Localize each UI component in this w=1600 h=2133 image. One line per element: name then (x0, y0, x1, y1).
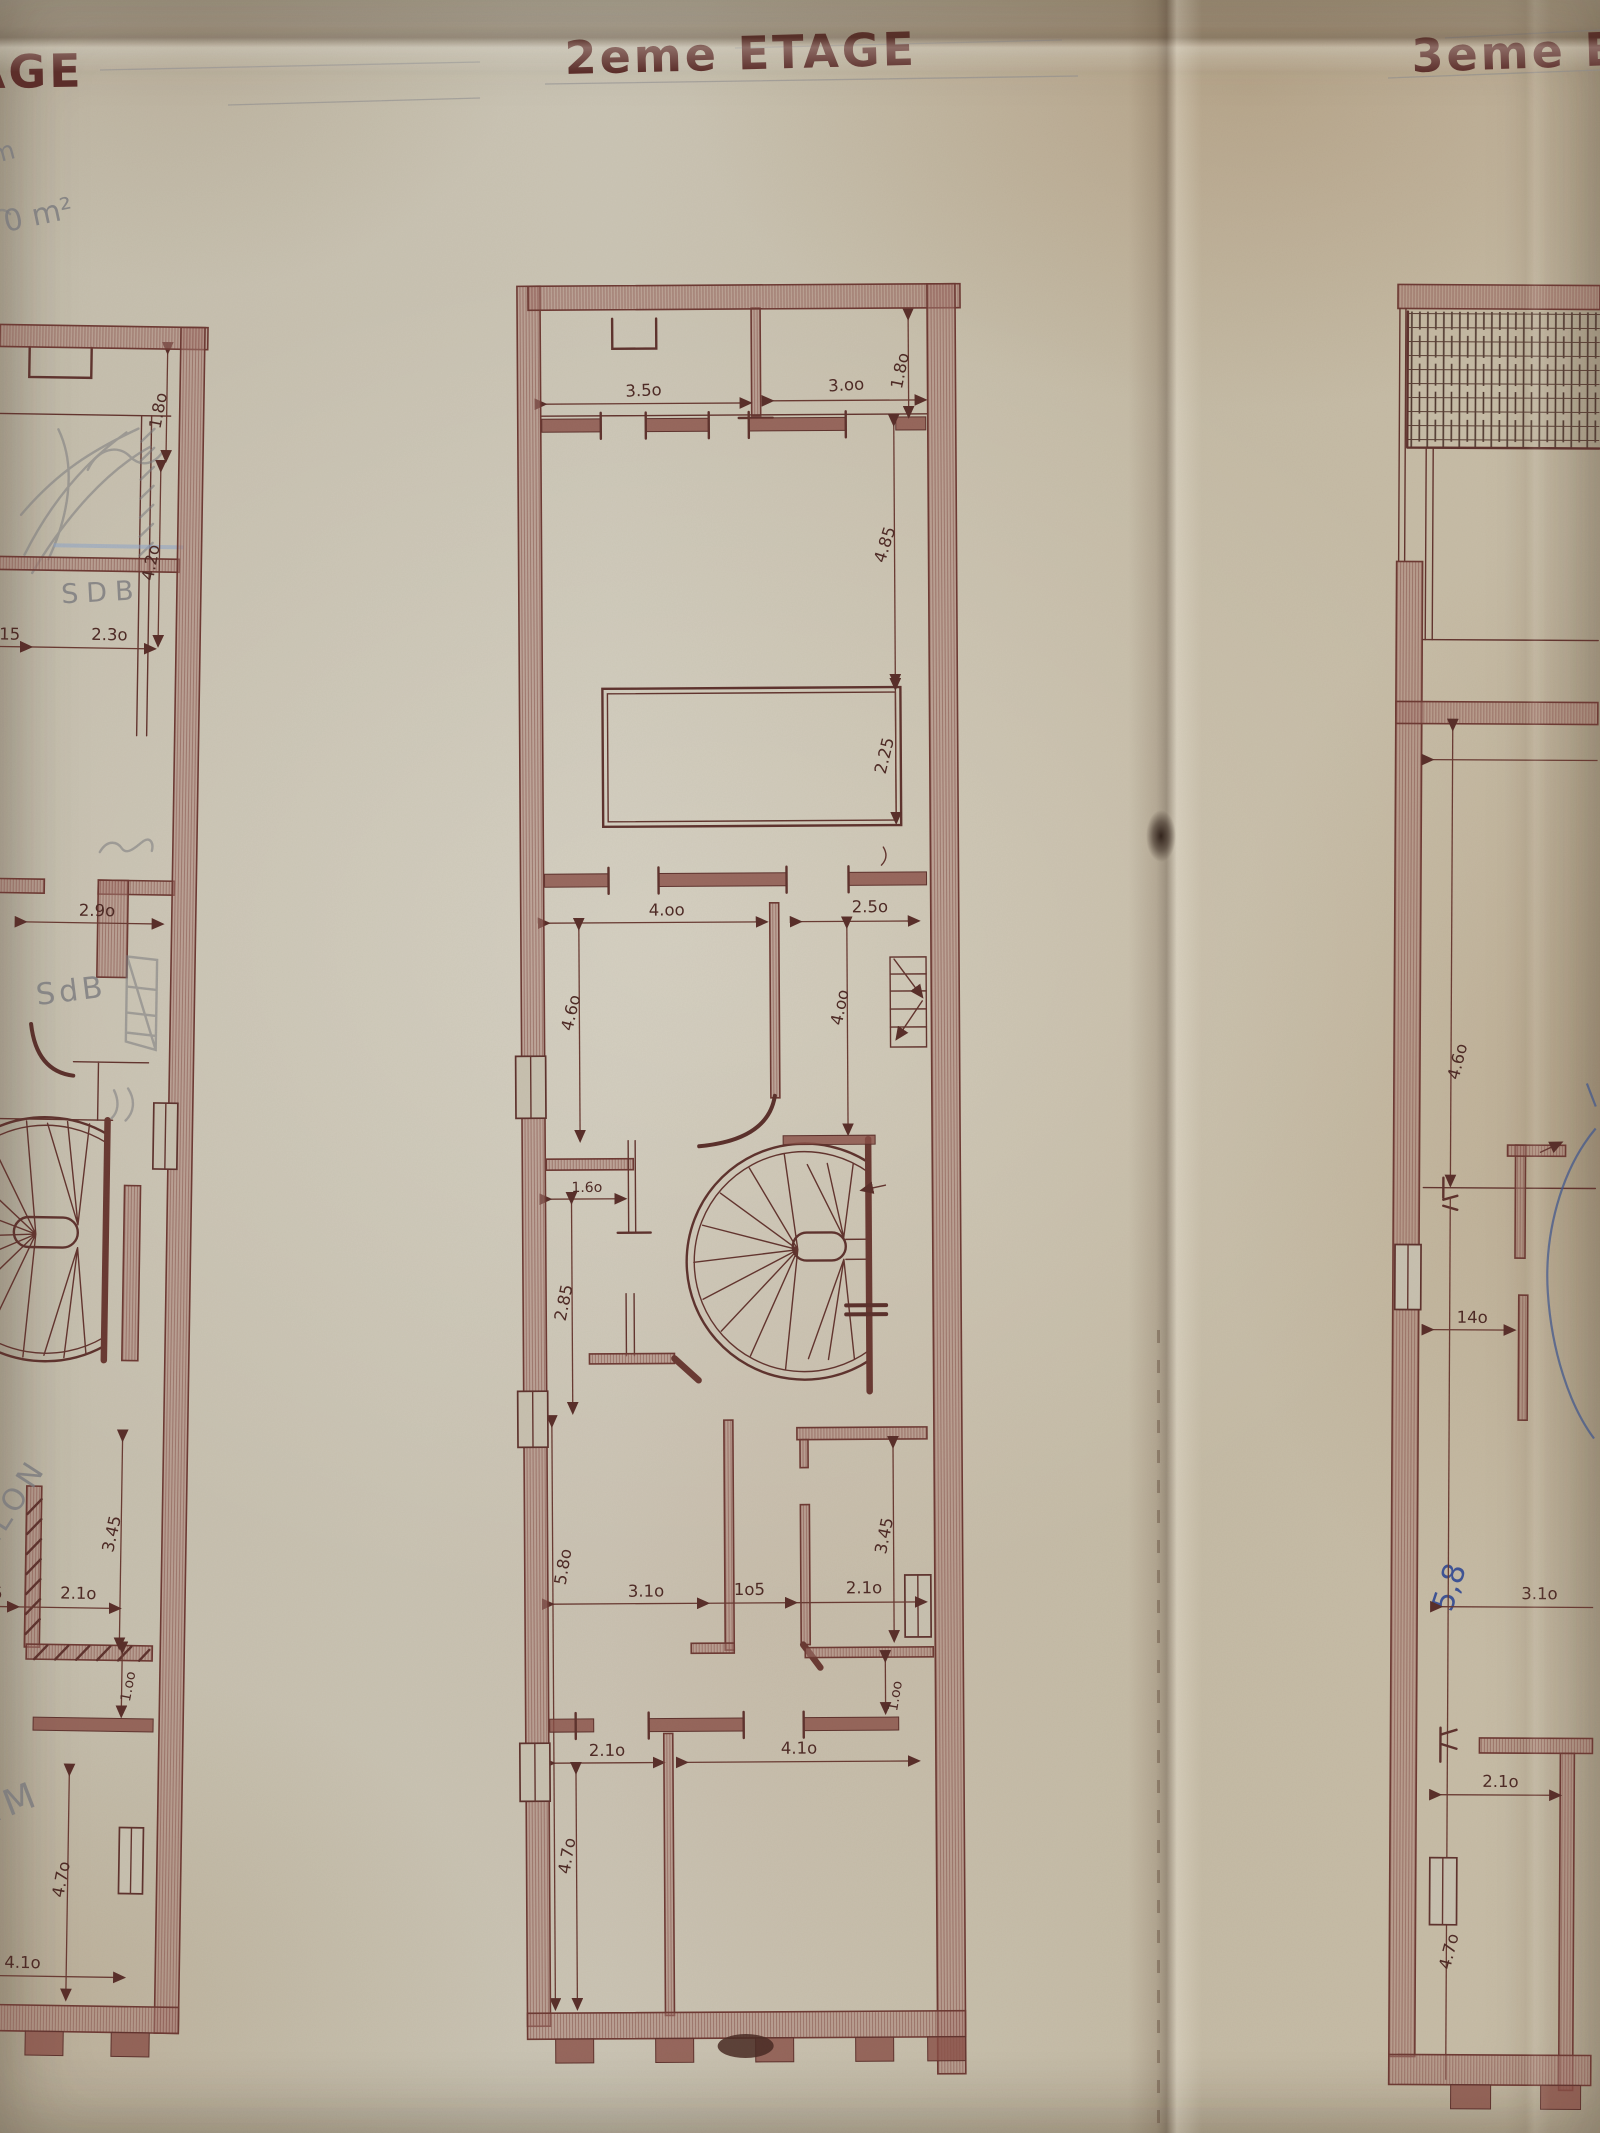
dim-label: 4.oo (649, 900, 685, 919)
title-3eme-partial: 3eme E (1410, 22, 1600, 83)
dim-label: 2.3o (91, 625, 128, 645)
dim-label: 3.1o (628, 1581, 664, 1600)
title-2eme-etage: 2eme ETAGE (564, 22, 918, 85)
dim-label: 2.1o (589, 1741, 625, 1760)
ladder-symbol (890, 957, 927, 1047)
window-symbol (1429, 1858, 1456, 1925)
pencil-note-sdb-lower: SdB (34, 970, 108, 1013)
dim-label: o5 (0, 1583, 3, 1602)
blue-pen-curve (1546, 1083, 1595, 1438)
dim-label: 14o (1457, 1308, 1488, 1327)
dim-label: 2.5o (852, 897, 888, 916)
grid-hatch-area (1407, 312, 1600, 449)
dim-label: 3.5o (625, 380, 662, 400)
blue-pencil-line (54, 545, 184, 547)
dim-label: 3.1o (1521, 1584, 1557, 1603)
dim-label: 5.8o (551, 1547, 576, 1586)
title-left-partial: AGE (0, 44, 84, 100)
dim-label: 4.1o (4, 1953, 41, 1973)
dim-label: 4.6o (1444, 1042, 1471, 1082)
window-symbol (1395, 1244, 1421, 1309)
dim-label: 3.oo (828, 374, 865, 395)
dim-label: 2.25 (871, 736, 898, 776)
pencil-note-sdb-upper: SDB (60, 575, 142, 610)
floor-plan-2eme-etage: 3.5o 3.oo 1.8o 4.85 2.25 4.oo 2.5o 4.6o … (511, 284, 971, 2077)
dim-label: 1.oo (118, 1670, 139, 1703)
spiral-staircase-left (0, 1115, 108, 1362)
dim-label: 4.7o (48, 1860, 74, 1899)
pencil-note-area: 0 m² (0, 191, 76, 240)
pencil-note-sam: AM (0, 1773, 49, 1837)
dim-label: 1.6o (571, 1180, 602, 1196)
dim-label: 4.1o (781, 1739, 817, 1758)
dim-label: 1o5 (734, 1580, 765, 1599)
dim-label: 2.1o (60, 1584, 97, 1604)
dim-label: 4.7o (1435, 1932, 1462, 1972)
titles: AGE 2eme ETAGE 3eme E m 0 m² (0, 22, 1600, 240)
dim-label: 4.oo (827, 988, 853, 1027)
dim-label: 2.9o (79, 901, 116, 921)
blueprint-photo: AGE 2eme ETAGE 3eme E m 0 m² 1.8o 4.2o 1… (0, 0, 1600, 2133)
pencil-note-m: m (0, 135, 19, 171)
floor-plan-left: 1.8o 4.2o 15 2.3o SDB 2.9o SdB SALON (0, 323, 208, 2057)
dim-label: 4.2o (138, 543, 164, 582)
dim-label: 4.6o (557, 993, 584, 1033)
dim-label: 2.1o (846, 1578, 882, 1597)
window-symbol (905, 1575, 931, 1637)
dim-label: 1.oo (885, 1680, 906, 1713)
floor-plans-drawing: AGE 2eme ETAGE 3eme E m 0 m² 1.8o 4.2o 1… (0, 0, 1600, 2133)
dim-label: 1.8o (146, 391, 172, 430)
floor-plan-3eme-partial: 4.6o 14o 5,8 3.1o 2.1o 4.7o (1389, 284, 1600, 2109)
dim-label: 15 (0, 624, 20, 643)
spiral-staircase-center (686, 1135, 887, 1392)
dim-label: 2.1o (1482, 1772, 1518, 1791)
dim-label: 4.7o (555, 1836, 580, 1875)
